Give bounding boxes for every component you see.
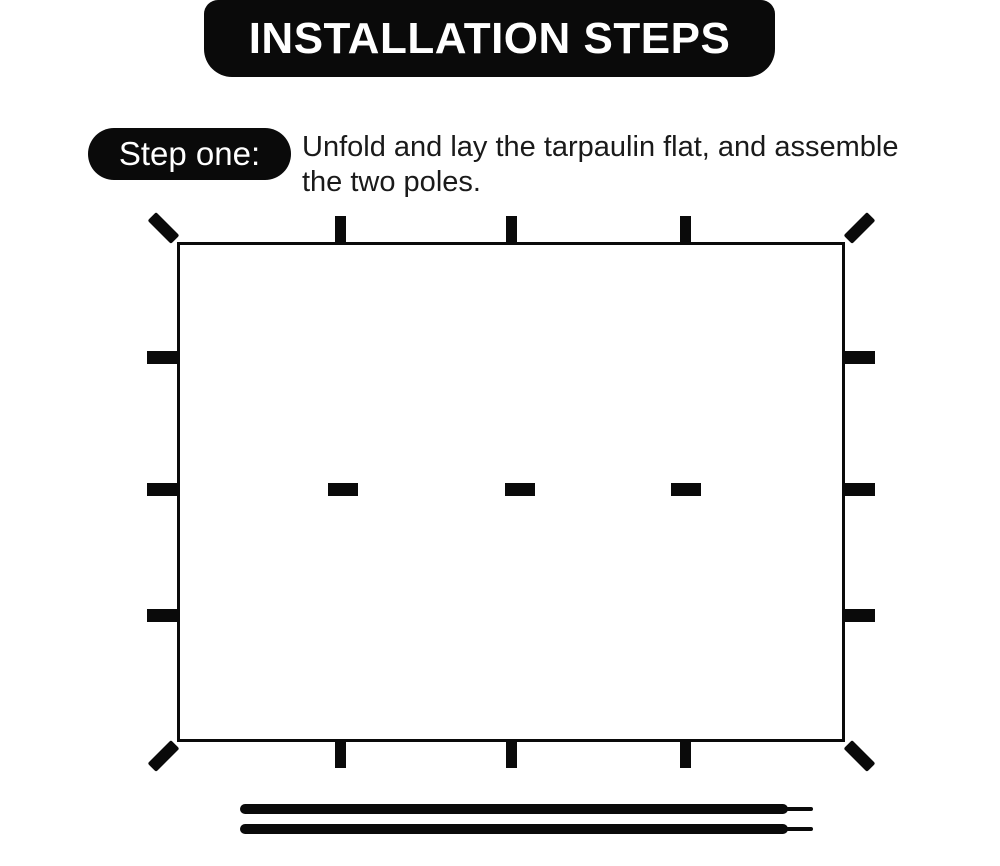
tie-loop-left-3 [147,609,177,622]
pole-1 [240,804,788,814]
pole-2 [240,824,788,834]
corner-loop-top-left [147,212,179,244]
corner-loop-top-right [843,212,875,244]
installation-infographic: INSTALLATION STEPS Step one: Unfold and … [0,0,1000,866]
tie-loop-right-3 [845,609,875,622]
tie-loop-right-1 [845,351,875,364]
center-loop-2 [505,483,535,496]
tie-loop-bottom-1 [335,742,346,768]
tie-loop-right-2 [845,483,875,496]
tie-loop-top-2 [506,216,517,242]
tarpaulin-diagram [0,0,1000,866]
center-loop-3 [671,483,701,496]
center-loop-1 [328,483,358,496]
pole-1-tip [786,807,813,811]
tie-loop-top-3 [680,216,691,242]
tie-loop-left-2 [147,483,177,496]
tie-loop-top-1 [335,216,346,242]
corner-loop-bottom-left [147,740,179,772]
corner-loop-bottom-right [843,740,875,772]
tie-loop-left-1 [147,351,177,364]
tie-loop-bottom-3 [680,742,691,768]
tie-loop-bottom-2 [506,742,517,768]
pole-2-tip [786,827,813,831]
